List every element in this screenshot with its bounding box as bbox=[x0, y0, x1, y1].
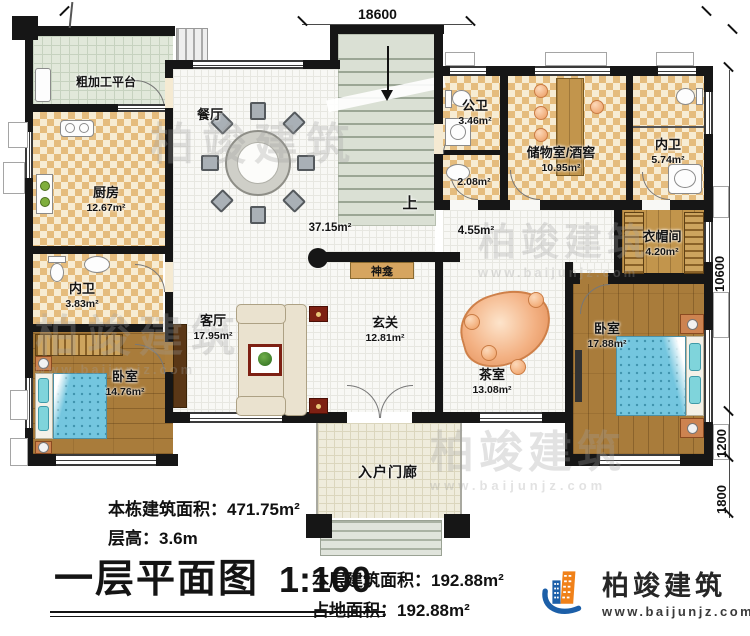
floor-plan-canvas: 神龛 柏竣建筑 柏竣建筑www.baijunjz.com 柏竣建筑www.bai… bbox=[0, 0, 750, 636]
stairs-direction-label: 上 bbox=[398, 196, 422, 213]
wall bbox=[435, 252, 443, 412]
wall bbox=[25, 26, 175, 36]
wardrobe bbox=[35, 334, 123, 356]
dimension-right-main: 10600 bbox=[712, 222, 727, 292]
nightstand bbox=[680, 418, 704, 438]
burner bbox=[40, 197, 50, 207]
window bbox=[56, 454, 156, 466]
toilet-tank bbox=[696, 88, 703, 105]
window-sill bbox=[445, 52, 475, 66]
window-sill bbox=[713, 186, 729, 218]
dimension-right-bottom: 1800 bbox=[714, 464, 729, 514]
porch-column bbox=[444, 514, 470, 538]
company-logo: 柏竣建筑 www.baijunjz.com bbox=[538, 566, 750, 625]
end-table bbox=[309, 398, 328, 414]
wall bbox=[614, 204, 622, 284]
pillow bbox=[689, 343, 701, 371]
tv bbox=[575, 350, 582, 402]
sink-bowl bbox=[79, 123, 89, 133]
dimension-top: 18600 bbox=[358, 6, 397, 22]
door-gap bbox=[165, 342, 173, 372]
company-name: 柏竣建筑 bbox=[602, 573, 750, 600]
chair bbox=[250, 206, 266, 224]
dimension-tick bbox=[727, 24, 738, 35]
company-url: www.baijunjz.com bbox=[602, 604, 750, 619]
sofa-back bbox=[283, 304, 307, 416]
window-sill bbox=[10, 438, 28, 466]
footprint-area-text: 占地面积：192.88m² bbox=[312, 596, 470, 621]
company-logo-icon bbox=[538, 566, 592, 625]
wall bbox=[330, 24, 338, 68]
stove bbox=[36, 174, 53, 214]
shrine-label: 神龛 bbox=[371, 263, 393, 279]
window-sill bbox=[8, 122, 28, 148]
area-label-dining: 37.15m² bbox=[300, 220, 360, 235]
room-label-bath-left: 内卫3.83m² bbox=[52, 282, 112, 311]
room-label-living: 客厅17.95m² bbox=[182, 314, 244, 343]
room-label-porch: 入户门廊 bbox=[352, 465, 424, 480]
room-label-platform: 粗加工平台 bbox=[58, 76, 154, 89]
end-table bbox=[309, 306, 328, 322]
room-label-kitchen: 厨房12.67m² bbox=[70, 186, 142, 215]
dimension-right-mid: 1200 bbox=[714, 412, 729, 458]
door-gap bbox=[165, 262, 173, 292]
wall bbox=[626, 66, 633, 210]
tea-stool bbox=[528, 292, 544, 308]
partition-line bbox=[633, 126, 704, 128]
window bbox=[193, 60, 303, 69]
basin bbox=[84, 256, 110, 273]
room-label-bedroom-right: 卧室17.88m² bbox=[572, 322, 642, 351]
tea-stool bbox=[481, 345, 497, 361]
door-gap bbox=[510, 200, 540, 210]
wall bbox=[25, 324, 163, 332]
basin bbox=[674, 169, 696, 188]
room-label-storage: 储物室/酒窖10.95m² bbox=[505, 146, 617, 175]
window bbox=[535, 66, 610, 76]
door-gap bbox=[642, 200, 670, 210]
hall-strip-floor bbox=[573, 262, 614, 273]
wine-jar bbox=[534, 84, 548, 98]
room-label-cloakroom: 衣帽间4.20m² bbox=[630, 230, 694, 259]
plant bbox=[258, 352, 272, 366]
porch-column bbox=[306, 514, 332, 538]
window bbox=[704, 92, 713, 134]
wine-jar bbox=[534, 128, 548, 142]
window-sill bbox=[545, 52, 607, 66]
window-sill bbox=[3, 162, 25, 194]
wall bbox=[434, 24, 443, 210]
area-label-hallway: 4.55m² bbox=[448, 223, 504, 238]
pillow bbox=[689, 376, 701, 404]
dining-table-center bbox=[237, 142, 279, 184]
chair bbox=[250, 102, 266, 120]
window bbox=[600, 454, 680, 466]
nightstand bbox=[680, 314, 704, 334]
room-label-bath-right: 内卫5.74m² bbox=[640, 138, 696, 167]
sofa-arm bbox=[236, 396, 286, 416]
nightstand bbox=[35, 356, 52, 371]
burner bbox=[40, 181, 50, 191]
pillow bbox=[38, 406, 49, 431]
toilet-bowl bbox=[676, 88, 695, 105]
stair-arrow-line bbox=[387, 46, 389, 90]
shrine: 神龛 bbox=[350, 262, 414, 279]
sink-bowl bbox=[65, 123, 75, 133]
dimension-tick bbox=[701, 6, 712, 17]
chair bbox=[201, 155, 219, 171]
door-gap bbox=[450, 200, 478, 210]
door-gap bbox=[165, 78, 173, 108]
area-label-basin-nook: 2.08m² bbox=[450, 174, 498, 189]
floor-height-text: 层高：3.6m bbox=[108, 524, 198, 549]
room-label-bedroom-left: 卧室14.76m² bbox=[90, 370, 160, 399]
corner-column bbox=[12, 16, 38, 40]
room-label-foyer: 玄关12.81m² bbox=[352, 316, 418, 345]
floor-area-text: 本层建筑面积：192.88m² bbox=[312, 566, 504, 591]
room-label-tea-room: 茶室13.08m² bbox=[462, 368, 522, 397]
window bbox=[658, 66, 696, 76]
wall bbox=[330, 24, 444, 34]
wall bbox=[25, 246, 165, 254]
window-sill bbox=[656, 52, 694, 66]
platform-sink bbox=[35, 68, 51, 102]
room-label-dining: 餐厅 bbox=[188, 108, 232, 122]
window bbox=[480, 412, 542, 423]
stair-arrow-head bbox=[381, 90, 393, 101]
wall bbox=[500, 66, 508, 210]
wine-jar bbox=[590, 100, 604, 114]
toilet-tank bbox=[48, 256, 66, 263]
window bbox=[704, 330, 713, 422]
plan-title: 一层平面图 bbox=[54, 548, 259, 604]
room-label-public-bath: 公卫3.46m² bbox=[448, 99, 502, 128]
door-gap bbox=[580, 273, 608, 284]
tea-stool bbox=[464, 314, 480, 330]
window-sill bbox=[10, 390, 28, 420]
column bbox=[308, 248, 328, 268]
nightstand bbox=[35, 441, 52, 454]
pillow bbox=[38, 378, 49, 403]
building-total-area-text: 本栋建筑面积：471.75m² bbox=[108, 495, 300, 520]
dimension-line-right bbox=[729, 70, 730, 518]
dimension-line-top bbox=[302, 24, 472, 25]
dimension-tick bbox=[59, 6, 70, 17]
window bbox=[118, 104, 165, 112]
chair bbox=[297, 155, 315, 171]
door-gap bbox=[434, 124, 443, 154]
toilet-bowl bbox=[50, 263, 64, 282]
wine-jar bbox=[534, 106, 548, 120]
window bbox=[450, 66, 486, 76]
wall bbox=[565, 262, 573, 454]
window-sill bbox=[713, 292, 729, 338]
